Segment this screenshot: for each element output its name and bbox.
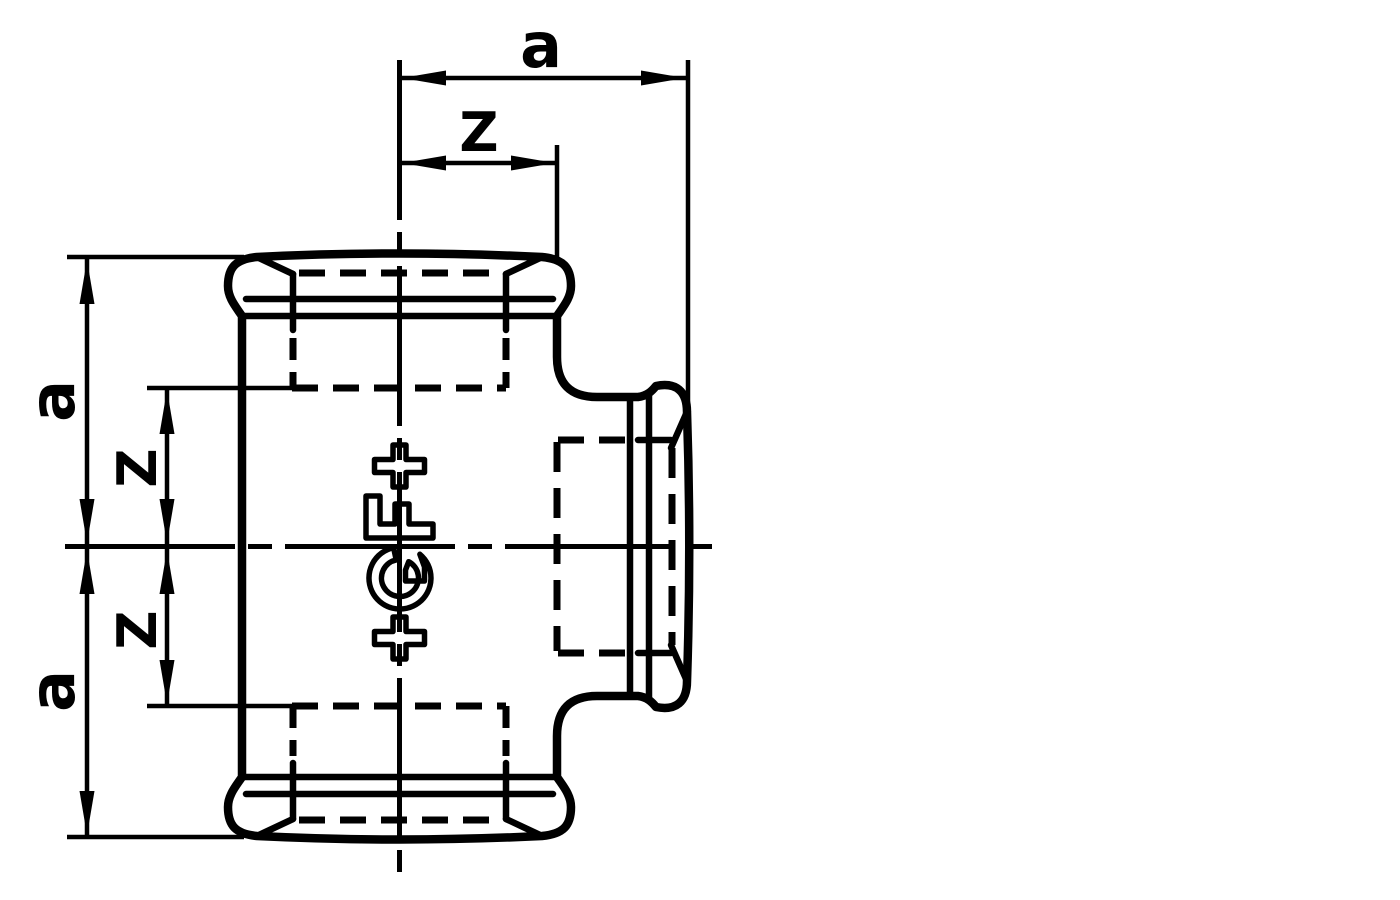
- tee-fitting-drawing: a Z a Z Z a: [0, 0, 1400, 900]
- label-left-z-bottom: Z: [106, 610, 169, 649]
- arrow-top-a-right: [641, 71, 685, 86]
- drawing-canvas: a Z a Z Z a: [0, 0, 1400, 900]
- arrow-left-z-bottom-down: [160, 660, 175, 704]
- arrow-left-a-bottom-down: [80, 791, 95, 835]
- arrow-top-z-left: [402, 156, 446, 171]
- arrow-left-z-bottom-up: [160, 550, 175, 594]
- arrow-top-z-right: [511, 156, 555, 171]
- arrow-left-a-bottom-up: [80, 550, 95, 594]
- dimension-labels: a Z a Z Z a: [16, 9, 562, 712]
- label-left-a-bottom: a: [16, 670, 89, 712]
- arrow-left-z-top-down: [160, 499, 175, 543]
- arrow-left-z-top-up: [160, 390, 175, 434]
- arrow-left-a-top-down: [80, 499, 95, 543]
- arrow-top-a-left: [402, 71, 446, 86]
- label-left-a-top: a: [16, 380, 89, 422]
- label-left-z-top: Z: [106, 448, 169, 487]
- arrow-left-a-top-up: [80, 260, 95, 304]
- label-top-z: Z: [459, 101, 498, 164]
- dimension-arrowheads: [80, 71, 686, 836]
- label-top-a: a: [520, 9, 562, 82]
